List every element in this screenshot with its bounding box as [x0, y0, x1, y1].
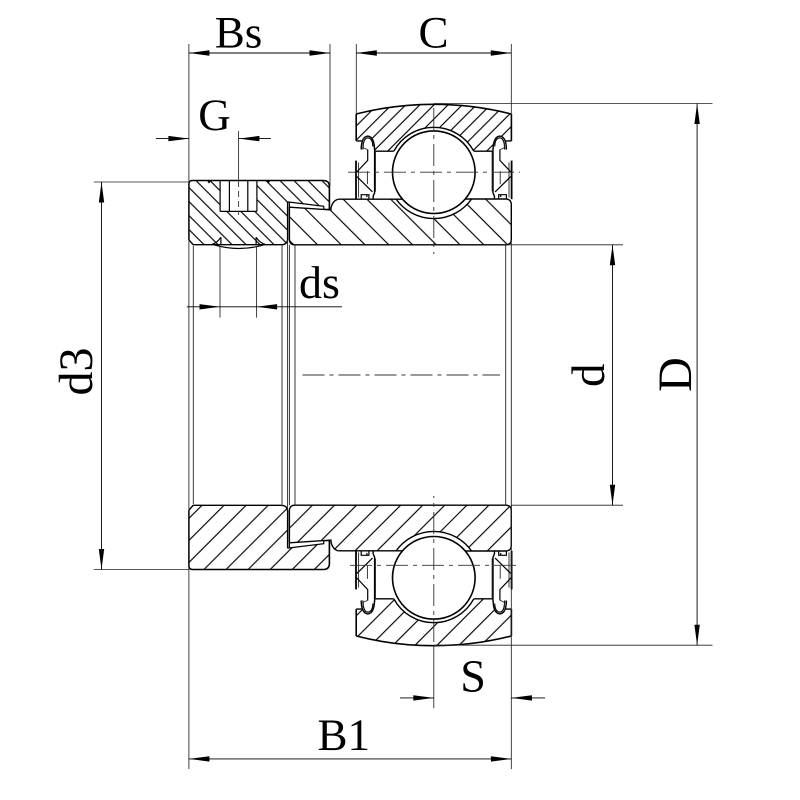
svg-text:B1: B1 — [318, 710, 371, 760]
svg-text:d: d — [563, 363, 615, 387]
svg-text:d3: d3 — [50, 348, 103, 396]
svg-text:ds: ds — [299, 257, 340, 308]
svg-text:G: G — [198, 90, 231, 140]
svg-text:Bs: Bs — [215, 8, 263, 58]
svg-text:D: D — [649, 357, 702, 392]
svg-text:C: C — [418, 8, 448, 58]
svg-text:S: S — [460, 651, 486, 702]
